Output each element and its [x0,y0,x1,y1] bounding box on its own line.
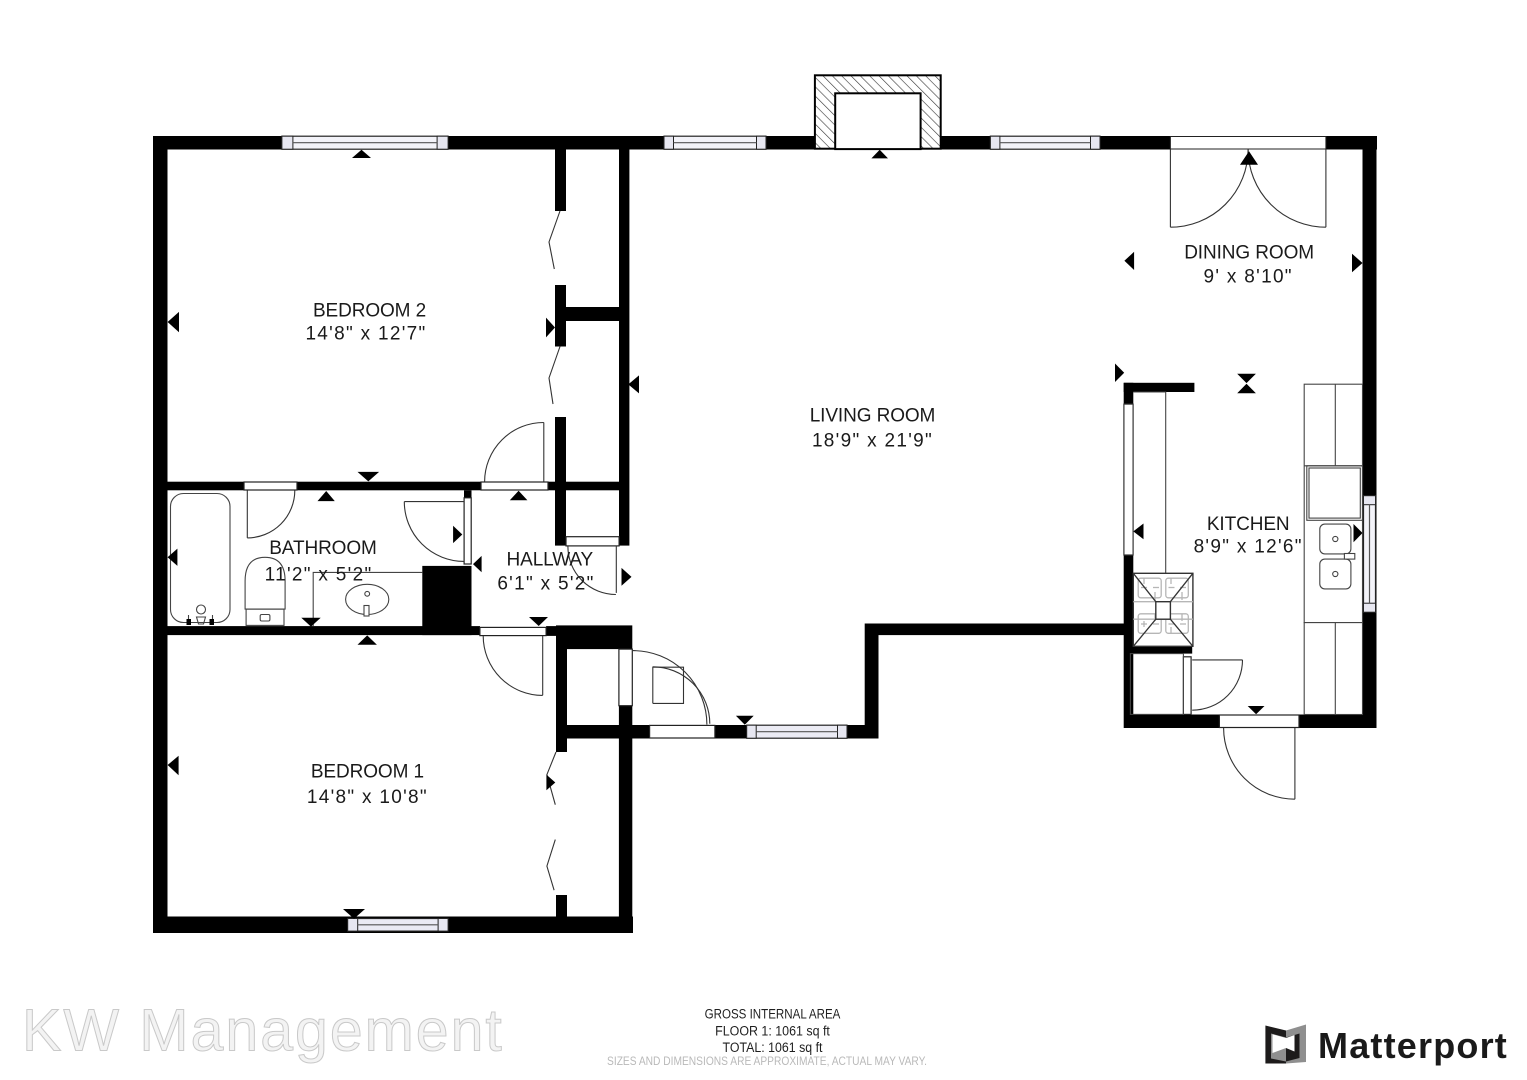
svg-text:SIZES AND DIMENSIONS ARE APPRO: SIZES AND DIMENSIONS ARE APPROXIMATE, AC… [607,1055,927,1068]
svg-text:BEDROOM 1: BEDROOM 1 [311,762,424,783]
svg-text:8'9" x 12'6": 8'9" x 12'6" [1194,537,1303,558]
svg-text:14'8" x 12'7": 14'8" x 12'7" [305,324,426,345]
svg-text:HALLWAY: HALLWAY [507,550,594,571]
svg-text:KW Management: KW Management [22,998,504,1064]
svg-text:6'1" x 5'2": 6'1" x 5'2" [497,574,594,595]
svg-text:DINING ROOM: DINING ROOM [1184,243,1314,264]
svg-text:TOTAL: 1061 sq ft: TOTAL: 1061 sq ft [723,1039,823,1055]
svg-text:BATHROOM: BATHROOM [269,538,377,559]
svg-text:LIVING ROOM: LIVING ROOM [810,405,936,426]
svg-text:BEDROOM 2: BEDROOM 2 [313,301,426,322]
svg-text:FLOOR 1: 1061 sq ft: FLOOR 1: 1061 sq ft [715,1023,830,1039]
svg-text:Matterport: Matterport [1318,1025,1508,1066]
svg-text:GROSS INTERNAL AREA: GROSS INTERNAL AREA [705,1006,841,1022]
svg-text:18'9" x 21'9": 18'9" x 21'9" [812,430,933,451]
svg-text:9' x 8'10": 9' x 8'10" [1204,267,1293,288]
svg-text:14'8" x 10'8": 14'8" x 10'8" [307,787,428,808]
svg-text:KITCHEN: KITCHEN [1207,514,1290,535]
svg-text:11'2" x 5'2": 11'2" x 5'2" [265,565,373,586]
